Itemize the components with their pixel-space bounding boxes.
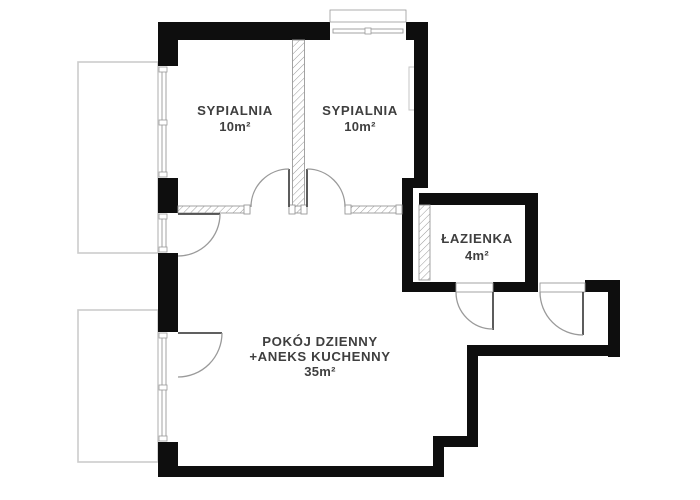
wall-step-vertical bbox=[467, 345, 478, 447]
wall-bottom bbox=[158, 466, 444, 477]
bathroom-label-name: ŁAZIENKA bbox=[441, 231, 512, 246]
room-labels: SYPIALNIA 10m² SYPIALNIA 10m² ŁAZIENKA 4… bbox=[197, 103, 513, 379]
wall-hallway-bottom-right bbox=[493, 282, 538, 292]
jamb-mark bbox=[244, 205, 250, 214]
window-mark bbox=[159, 436, 167, 441]
partition-walls bbox=[178, 40, 430, 280]
bedroom2-label-name: SYPIALNIA bbox=[322, 103, 398, 118]
jamb-mark bbox=[345, 205, 351, 214]
floor-plan-svg: SYPIALNIA 10m² SYPIALNIA 10m² ŁAZIENKA 4… bbox=[0, 0, 700, 500]
living-room-label-line1: POKÓJ DZIENNY bbox=[262, 334, 378, 349]
bathroom-door-arc bbox=[456, 292, 493, 329]
wall-bedroom2-right bbox=[414, 22, 428, 188]
windows bbox=[159, 10, 414, 441]
top-window-sill-box bbox=[330, 10, 406, 22]
middle-wall-segment-3 bbox=[345, 206, 402, 213]
window-mark bbox=[159, 67, 167, 72]
exterior-walls bbox=[158, 22, 620, 477]
entrance-door-opening bbox=[540, 283, 585, 292]
jamb-mark bbox=[396, 205, 402, 214]
living-room-label-line2: +ANEKS KUCHENNY bbox=[249, 349, 390, 364]
bedroom2-label-area: 10m² bbox=[344, 119, 376, 134]
window-mark bbox=[159, 385, 167, 390]
balcony-door2-arc bbox=[178, 333, 222, 377]
wall-top-left bbox=[160, 22, 330, 40]
living-room-label-area: 35m² bbox=[304, 364, 336, 379]
wall-left-top bbox=[158, 22, 178, 66]
balcony-door1-arc bbox=[178, 214, 220, 256]
wall-left-mid-1 bbox=[158, 178, 178, 213]
window-mark bbox=[159, 214, 167, 219]
bedroom1-label-name: SYPIALNIA bbox=[197, 103, 273, 118]
wall-left-mid-2 bbox=[158, 253, 178, 332]
balcony-door1-pane bbox=[162, 216, 166, 250]
wall-hallway-bottom-left bbox=[402, 282, 456, 292]
balcony-bottom bbox=[78, 310, 158, 462]
bedroom1-label-area: 10m² bbox=[219, 119, 251, 134]
bathroom-label-area: 4m² bbox=[465, 248, 489, 263]
window-mark bbox=[159, 333, 167, 338]
window-mark bbox=[159, 247, 167, 252]
bathroom-door-opening bbox=[456, 283, 493, 292]
middle-wall-segment-1 bbox=[178, 206, 250, 213]
entrance-door-arc bbox=[540, 292, 583, 335]
bedroom1-door-arc bbox=[251, 169, 289, 207]
wall-entry-bottom bbox=[467, 345, 620, 356]
bathroom-installation-wall bbox=[419, 205, 430, 280]
wall-bathroom-top bbox=[419, 193, 538, 205]
balconies bbox=[78, 62, 158, 462]
top-window-mark bbox=[365, 28, 371, 34]
window-mark bbox=[159, 172, 167, 177]
floor-plan-page: SYPIALNIA 10m² SYPIALNIA 10m² ŁAZIENKA 4… bbox=[0, 0, 700, 500]
bedroom-partition-wall bbox=[293, 40, 305, 206]
window-mark bbox=[159, 120, 167, 125]
wall-bathroom-right bbox=[525, 193, 538, 292]
wall-hallway-right bbox=[402, 188, 413, 292]
wall-corner-block bbox=[402, 178, 428, 188]
bedroom2-door-arc bbox=[307, 169, 345, 207]
bedroom2-wall-niche bbox=[409, 67, 414, 110]
balcony-top bbox=[78, 62, 158, 253]
